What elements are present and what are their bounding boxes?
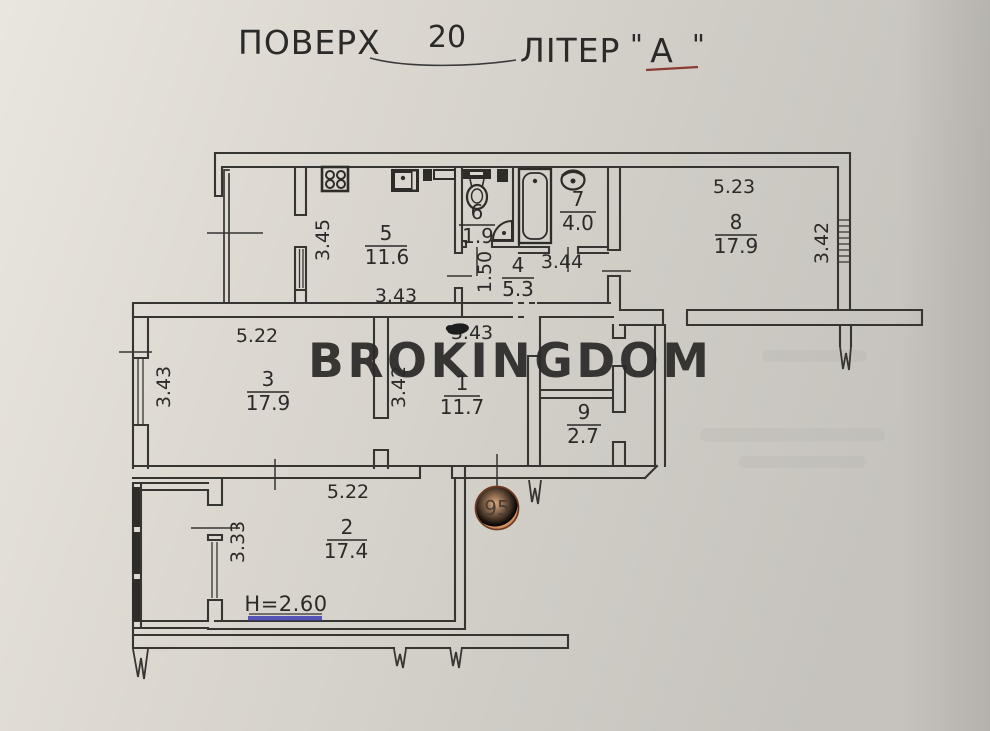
room3-area: 17.9 [246, 391, 291, 415]
kitchen-sink-icon [391, 169, 419, 192]
header-letter-value: А [650, 31, 674, 70]
dim-room2-width: 5.22 [327, 481, 369, 503]
dim-room8-width: 5.23 [713, 176, 755, 198]
floorplan-svg: ПОВЕРХ 20 ЛІТЕР " А " [0, 0, 990, 731]
inventory-stamp-number: 95 [484, 496, 509, 520]
room9-area: 2.7 [567, 424, 599, 448]
room1-area: 11.7 [440, 395, 485, 419]
header-floor-label: ПОВЕРХ [238, 23, 381, 62]
dim-room3-height: 3.43 [153, 366, 175, 408]
paper-edge-shadow [900, 0, 990, 731]
room6-number: 6 [471, 200, 484, 224]
room5-number: 5 [380, 221, 393, 245]
dim-kitchen-width: 3.43 [375, 285, 417, 307]
room2-area: 17.4 [324, 539, 369, 563]
room3-number: 3 [262, 367, 275, 391]
header-floor-value: 20 [428, 20, 466, 55]
watermark-text: BROKINGDOM [308, 334, 713, 389]
room8-number: 8 [730, 210, 743, 234]
room5-area: 11.6 [365, 245, 410, 269]
ceiling-height-underline-blue [248, 616, 322, 621]
ceiling-height-text: H=2.60 [244, 592, 327, 616]
room6-area: 1.9 [462, 224, 494, 248]
dim-room2-height: 3.33 [227, 521, 249, 563]
header-quote-close: " [692, 28, 705, 61]
room4-area: 5.3 [502, 277, 534, 301]
header-letter-label: ЛІТЕР [520, 31, 620, 70]
room2-number: 2 [341, 515, 354, 539]
dim-room8-height: 3.42 [811, 222, 833, 264]
dim-hall-height: 1.50 [474, 251, 496, 293]
room8-area: 17.9 [714, 234, 759, 258]
header-quote-open: " [630, 28, 643, 61]
loggia2-window-panels [132, 487, 140, 621]
dim-kitchen-loggia-height: 3.45 [312, 219, 334, 261]
inventory-stamp: 95 [476, 487, 519, 530]
room9-number: 9 [578, 400, 591, 424]
dim-room3-width: 5.22 [236, 325, 278, 347]
room4-number: 4 [512, 253, 525, 277]
ceiling-height-note: H=2.60 [244, 592, 327, 621]
floorplan-scan: ПОВЕРХ 20 ЛІТЕР " А " [0, 0, 990, 731]
dim-hall-width: 3.44 [541, 251, 583, 273]
room7-number: 7 [572, 187, 585, 211]
room7-area: 4.0 [562, 211, 594, 235]
